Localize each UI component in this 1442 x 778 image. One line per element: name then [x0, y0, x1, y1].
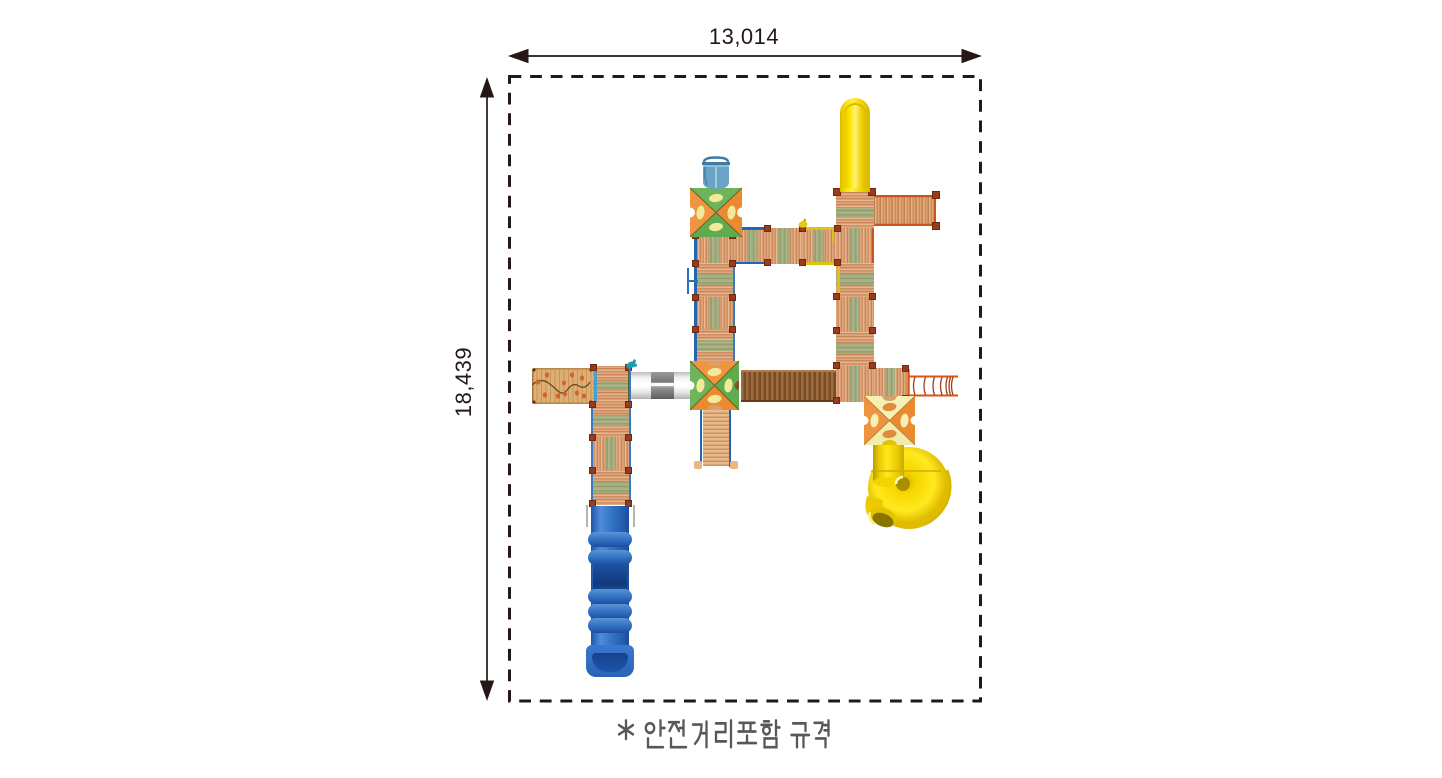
svg-text:18,439: 18,439 — [451, 347, 476, 417]
svg-text:13,014: 13,014 — [709, 24, 779, 49]
